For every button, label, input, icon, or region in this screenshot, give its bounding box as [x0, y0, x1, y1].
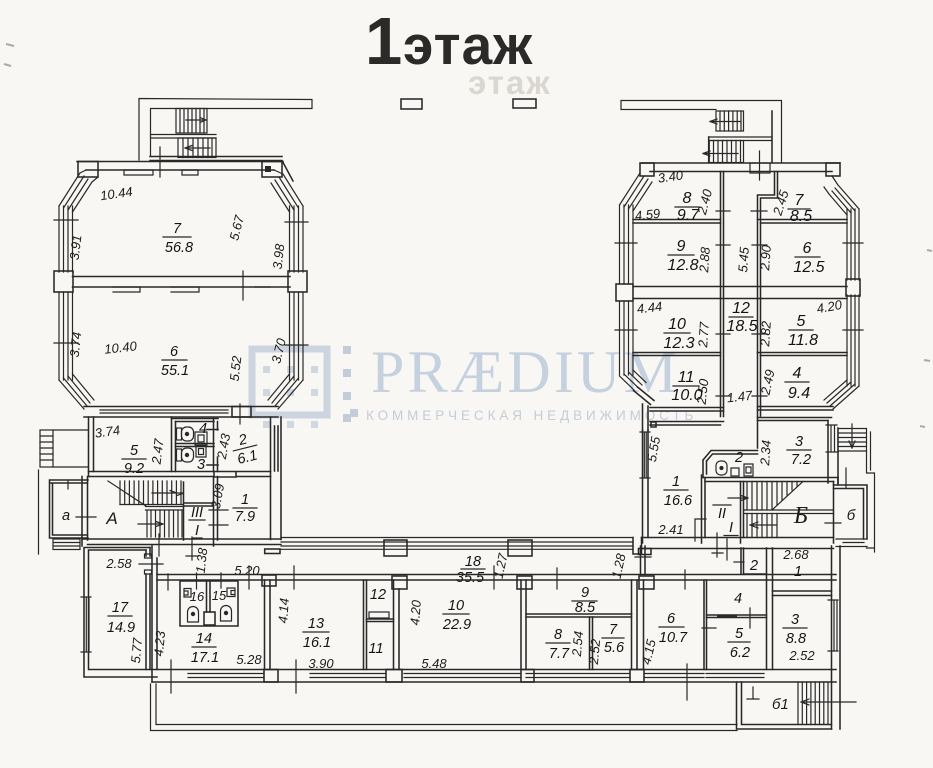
- svg-text:2.52: 2.52: [788, 648, 815, 663]
- svg-text:б1: б1: [772, 696, 789, 713]
- svg-text:10.7: 10.7: [659, 630, 688, 646]
- svg-text:8: 8: [683, 190, 692, 207]
- svg-text:5: 5: [797, 313, 806, 330]
- svg-text:18: 18: [465, 554, 481, 570]
- svg-text:1: 1: [672, 474, 680, 490]
- svg-text:I: I: [195, 523, 199, 539]
- svg-text:1: 1: [241, 492, 249, 508]
- svg-text:4: 4: [199, 421, 207, 437]
- svg-text:А: А: [105, 509, 117, 528]
- svg-text:II: II: [718, 506, 726, 522]
- svg-text:2.50: 2.50: [694, 377, 712, 405]
- svg-text:12: 12: [370, 587, 386, 603]
- svg-text:10: 10: [668, 316, 686, 333]
- svg-text:2.52: 2.52: [586, 638, 603, 666]
- svg-text:12.5: 12.5: [793, 259, 824, 276]
- svg-text:35.5: 35.5: [456, 570, 485, 586]
- svg-text:22.9: 22.9: [442, 617, 471, 633]
- svg-text:4: 4: [734, 591, 742, 607]
- svg-text:56.8: 56.8: [165, 240, 193, 256]
- svg-text:1.47: 1.47: [726, 388, 753, 406]
- svg-text:6: 6: [667, 611, 676, 627]
- svg-text:5.28: 5.28: [236, 652, 262, 667]
- svg-text:этаж: этаж: [403, 14, 533, 76]
- svg-text:3: 3: [795, 434, 803, 450]
- svg-text:12: 12: [732, 300, 750, 317]
- svg-text:2.41: 2.41: [657, 522, 683, 537]
- svg-text:16.1: 16.1: [303, 635, 331, 651]
- svg-text:7.9: 7.9: [235, 509, 255, 525]
- svg-text:14: 14: [196, 631, 212, 647]
- svg-text:7.7: 7.7: [549, 646, 570, 662]
- svg-text:4.14: 4.14: [275, 598, 292, 624]
- svg-text:1: 1: [794, 564, 802, 580]
- svg-text:2.58: 2.58: [105, 556, 132, 571]
- svg-text:3: 3: [791, 612, 799, 628]
- svg-text:5: 5: [130, 443, 139, 459]
- svg-text:б: б: [847, 507, 856, 524]
- svg-text:10: 10: [448, 598, 464, 614]
- svg-text:6.2: 6.2: [730, 645, 750, 661]
- svg-text:4.44: 4.44: [636, 299, 663, 317]
- svg-text:6: 6: [803, 240, 812, 257]
- svg-text:17: 17: [112, 600, 129, 616]
- svg-text:5.77: 5.77: [128, 637, 145, 664]
- svg-text:4: 4: [793, 365, 802, 382]
- svg-text:8: 8: [554, 627, 562, 643]
- svg-text:2.88: 2.88: [696, 246, 713, 274]
- svg-text:I: I: [729, 520, 733, 536]
- svg-text:7: 7: [173, 221, 182, 237]
- svg-text:1: 1: [365, 4, 403, 79]
- svg-text:16: 16: [190, 589, 205, 604]
- svg-text:8.8: 8.8: [786, 631, 806, 647]
- svg-text:7: 7: [609, 622, 618, 638]
- svg-text:4.23: 4.23: [151, 630, 168, 657]
- svg-text:III: III: [191, 505, 203, 521]
- svg-text:17.1: 17.1: [191, 650, 219, 666]
- svg-text:11: 11: [678, 369, 695, 386]
- svg-text:12.3: 12.3: [663, 335, 694, 352]
- svg-text:5: 5: [735, 626, 744, 642]
- svg-text:55.1: 55.1: [161, 363, 189, 379]
- svg-text:9: 9: [677, 238, 686, 255]
- svg-text:а: а: [62, 508, 70, 524]
- svg-text:PRÆDIUM: PRÆDIUM: [371, 339, 680, 405]
- svg-text:5.6: 5.6: [604, 640, 625, 656]
- svg-text:11.8: 11.8: [788, 332, 818, 349]
- svg-text:9.2: 9.2: [124, 461, 144, 477]
- svg-text:2.77: 2.77: [695, 321, 712, 349]
- svg-text:5.20: 5.20: [234, 563, 260, 578]
- svg-text:14.9: 14.9: [107, 620, 135, 636]
- svg-text:3.91: 3.91: [67, 234, 85, 261]
- svg-text:9: 9: [581, 585, 589, 601]
- svg-text:3.98: 3.98: [270, 242, 288, 269]
- svg-text:3.74: 3.74: [67, 331, 85, 358]
- svg-text:3: 3: [197, 457, 205, 473]
- svg-text:2.90: 2.90: [757, 244, 774, 272]
- svg-text:7.2: 7.2: [791, 452, 811, 468]
- svg-text:16.6: 16.6: [664, 493, 693, 509]
- svg-text:5.45: 5.45: [735, 246, 752, 273]
- svg-text:2.34: 2.34: [757, 440, 774, 467]
- svg-text:4.59: 4.59: [634, 206, 661, 224]
- svg-text:13: 13: [308, 616, 324, 632]
- svg-text:5.52: 5.52: [227, 354, 245, 381]
- svg-text:18.5: 18.5: [726, 318, 757, 335]
- svg-text:2.82: 2.82: [757, 320, 774, 348]
- svg-text:1.38: 1.38: [193, 546, 211, 573]
- svg-text:7: 7: [795, 192, 805, 209]
- svg-text:9.4: 9.4: [788, 385, 810, 402]
- svg-text:2.54: 2.54: [569, 630, 586, 658]
- svg-text:8.5: 8.5: [790, 208, 812, 225]
- svg-text:4.20: 4.20: [407, 599, 424, 626]
- svg-text:6: 6: [170, 344, 179, 360]
- svg-text:2: 2: [749, 558, 758, 574]
- svg-text:12.8: 12.8: [667, 257, 698, 274]
- svg-text:2: 2: [734, 450, 743, 466]
- svg-text:Б: Б: [793, 503, 808, 529]
- svg-text:11: 11: [368, 641, 383, 657]
- svg-text:15: 15: [212, 588, 227, 603]
